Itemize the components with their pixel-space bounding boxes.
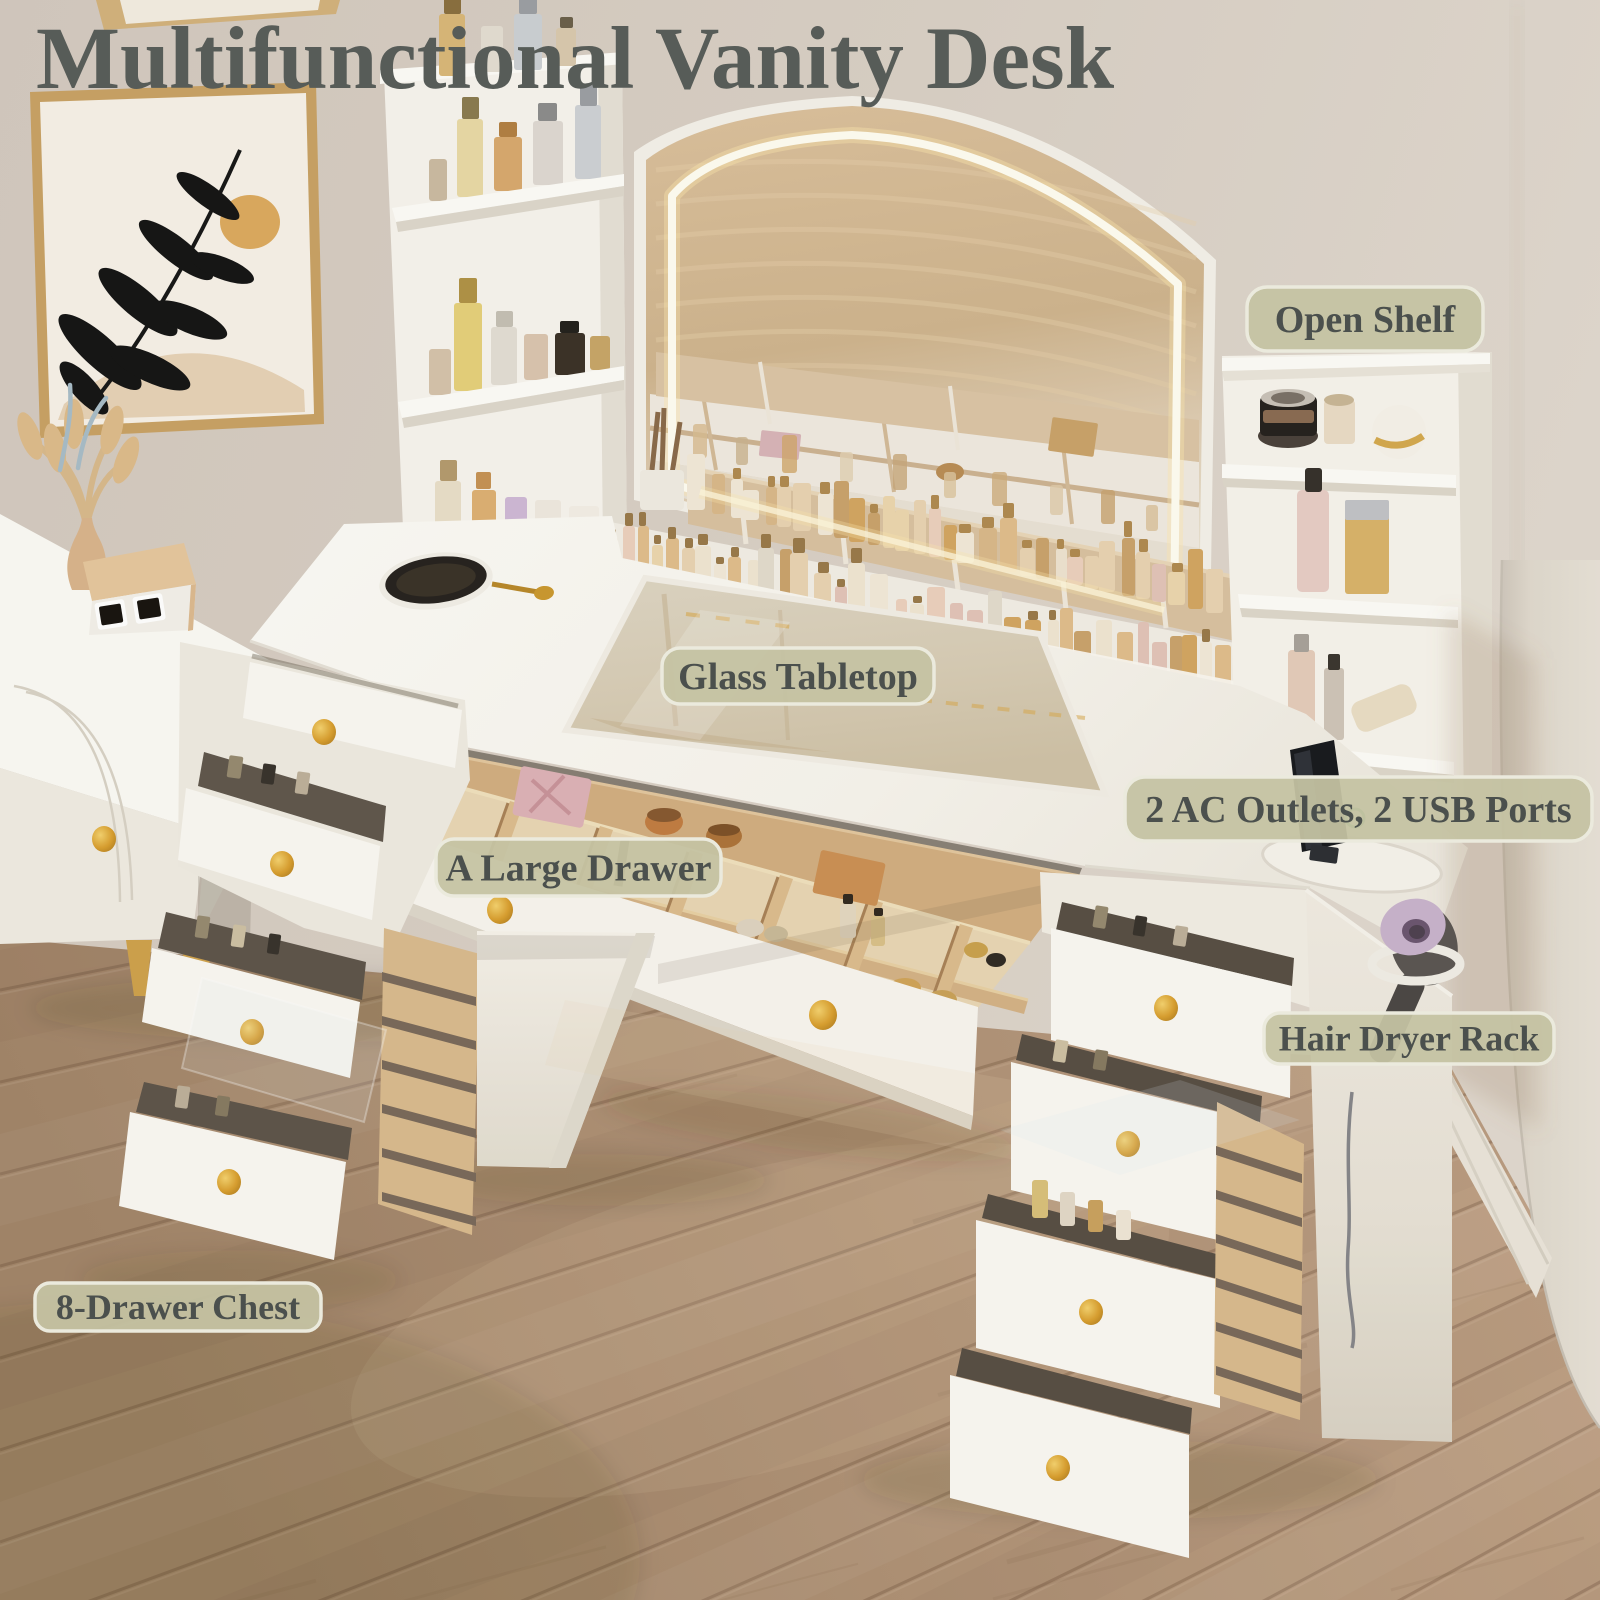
svg-text:2 AC Outlets, 2 USB Ports: 2 AC Outlets, 2 USB Ports bbox=[1145, 789, 1571, 831]
svg-text:A Large Drawer: A Large Drawer bbox=[446, 847, 712, 889]
svg-text:Multifunctional Vanity Desk: Multifunctional Vanity Desk bbox=[36, 10, 1115, 108]
svg-text:8-Drawer Chest: 8-Drawer Chest bbox=[56, 1287, 300, 1327]
svg-text:Hair Dryer Rack: Hair Dryer Rack bbox=[1279, 1019, 1540, 1059]
svg-text:Glass Tabletop: Glass Tabletop bbox=[678, 656, 918, 698]
svg-text:Open Shelf: Open Shelf bbox=[1275, 299, 1457, 341]
